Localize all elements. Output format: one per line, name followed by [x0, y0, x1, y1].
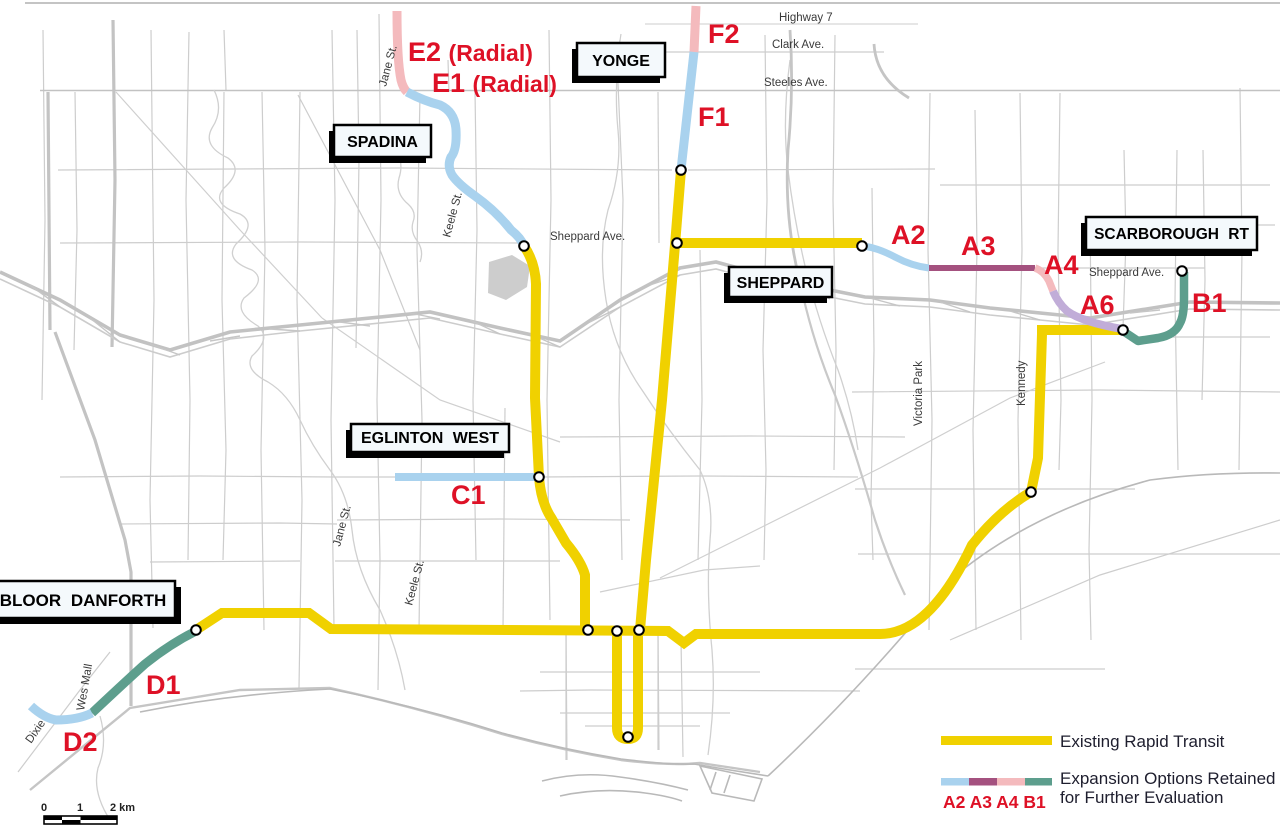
- svg-text:0: 0: [41, 802, 47, 814]
- svg-text:E1 (Radial): E1 (Radial): [432, 68, 557, 98]
- svg-text:Clark Ave.: Clark Ave.: [772, 39, 824, 51]
- svg-text:A4: A4: [1044, 250, 1079, 280]
- svg-text:A3: A3: [961, 231, 996, 261]
- svg-text:for Further Evaluation: for Further Evaluation: [1060, 788, 1223, 807]
- svg-text:Victoria Park: Victoria Park: [913, 361, 925, 426]
- svg-text:D2: D2: [63, 727, 98, 757]
- svg-text:SPADINA: SPADINA: [347, 134, 418, 151]
- svg-text:SHEPPARD: SHEPPARD: [737, 275, 825, 292]
- svg-text:A2 A3 A4 B1: A2 A3 A4 B1: [943, 792, 1046, 812]
- svg-text:Expansion Options Retained: Expansion Options Retained: [1060, 769, 1275, 788]
- svg-text:BLOOR DANFORTH: BLOOR DANFORTH: [0, 591, 166, 610]
- svg-text:A2: A2: [891, 220, 926, 250]
- svg-text:Highway 7: Highway 7: [779, 12, 833, 24]
- svg-text:E2 (Radial): E2 (Radial): [408, 37, 533, 67]
- svg-text:B1: B1: [1192, 288, 1227, 318]
- svg-text:A6: A6: [1080, 290, 1115, 320]
- svg-text:C1: C1: [451, 480, 486, 510]
- svg-text:F2: F2: [708, 19, 740, 49]
- svg-text:Steeles Ave.: Steeles Ave.: [764, 77, 828, 89]
- svg-text:Kennedy: Kennedy: [1016, 360, 1028, 406]
- svg-text:Sheppard Ave.: Sheppard Ave.: [550, 231, 625, 243]
- svg-text:Existing Rapid Transit: Existing Rapid Transit: [1060, 732, 1225, 751]
- svg-text:D1: D1: [146, 670, 181, 700]
- svg-text:Sheppard Ave.: Sheppard Ave.: [1089, 267, 1164, 279]
- svg-text:2 km: 2 km: [110, 802, 135, 814]
- svg-text:EGLINTON WEST: EGLINTON WEST: [361, 430, 499, 447]
- svg-text:F1: F1: [698, 102, 730, 132]
- svg-text:YONGE: YONGE: [592, 53, 650, 70]
- svg-text:1: 1: [77, 802, 83, 814]
- svg-text:SCARBOROUGH RT: SCARBOROUGH RT: [1094, 226, 1249, 243]
